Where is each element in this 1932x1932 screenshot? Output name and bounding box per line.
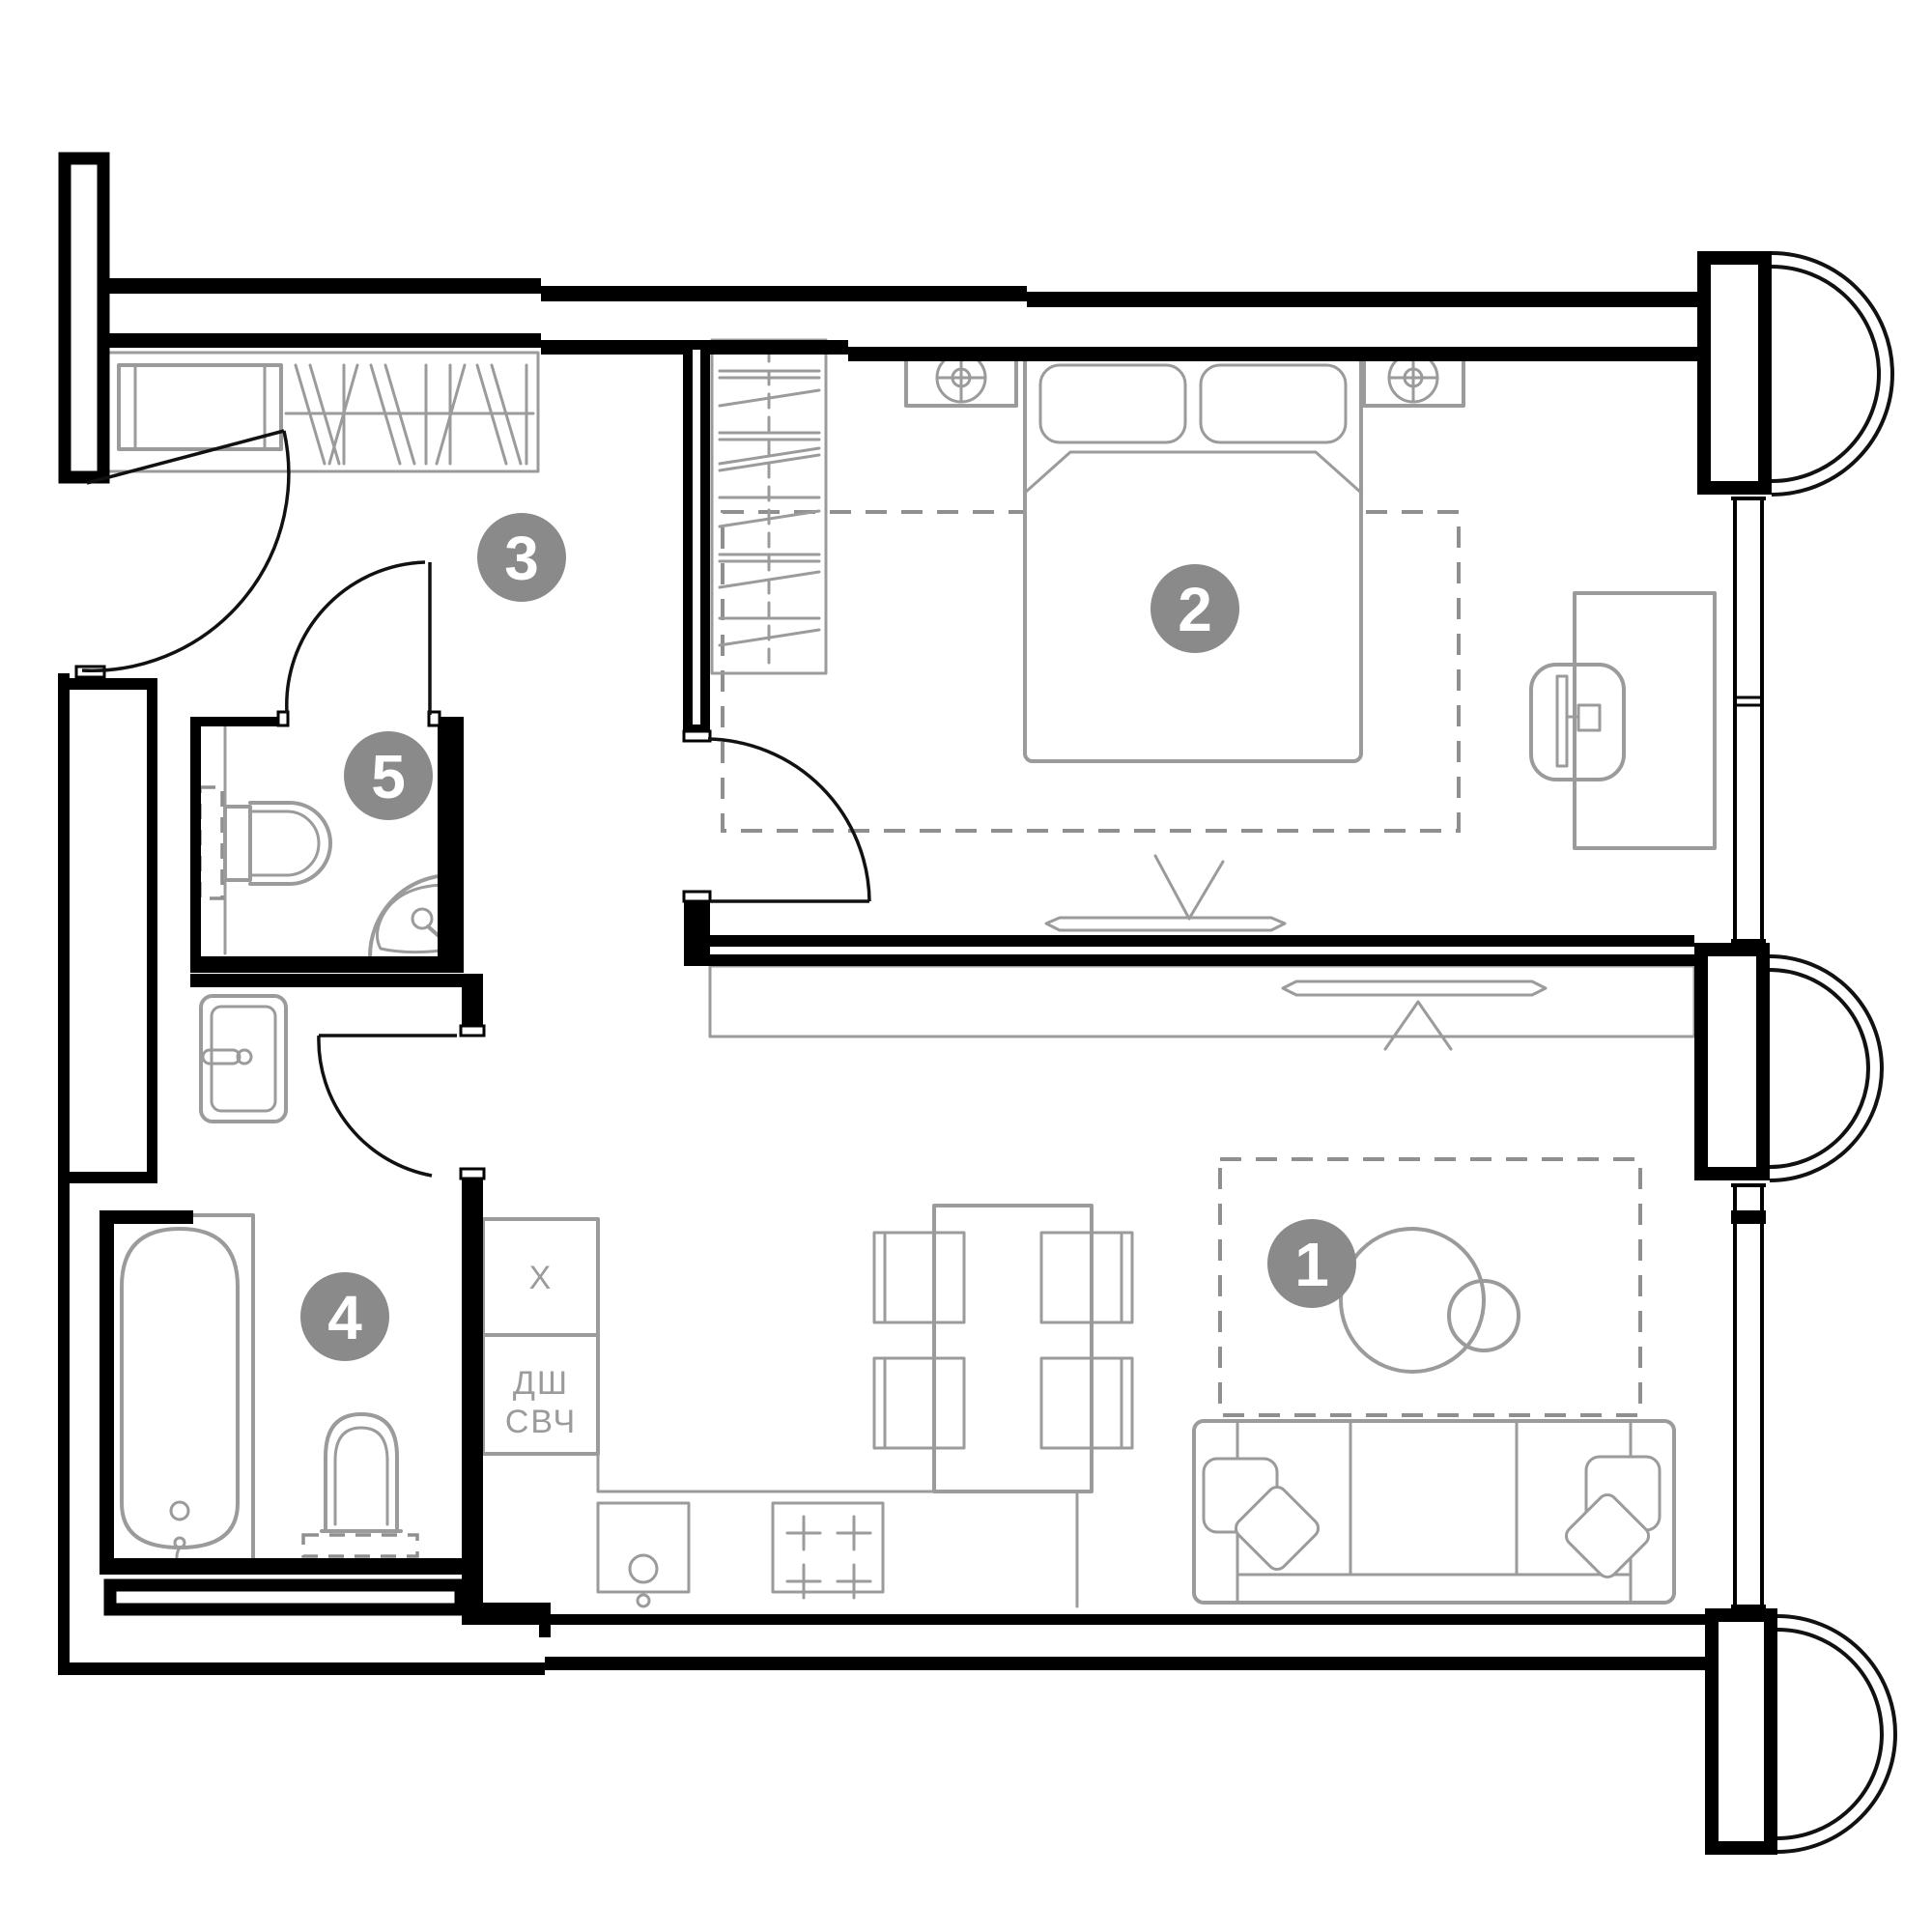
plumbing-chase [110, 1585, 461, 1609]
window-lower [1735, 1183, 1762, 1608]
chair [874, 1358, 964, 1448]
hall-wardrobe [106, 353, 538, 471]
wc-wall-top [190, 717, 283, 726]
balcony-door-mid [1770, 956, 1882, 1180]
badge-number: 4 [327, 1283, 362, 1352]
kitchen: X ДШ СВЧ [483, 1219, 1077, 1606]
pier-top-right [1704, 258, 1765, 488]
chair [1041, 1358, 1132, 1448]
badge-number: 3 [504, 524, 539, 593]
balcony-door-bottom [1777, 1616, 1895, 1852]
bathroom-wall-right [462, 1179, 483, 1606]
duct-dashed [200, 787, 222, 898]
stove-icon [773, 1503, 883, 1598]
chair [1041, 1233, 1132, 1322]
door-jamb [461, 1169, 484, 1179]
kitchen-sink-icon [598, 1503, 689, 1606]
dining-set [874, 1206, 1132, 1492]
wall-top-inner [102, 333, 1697, 361]
bed-outline [1025, 355, 1361, 761]
tv-icon [1283, 981, 1546, 995]
entry-door [82, 431, 289, 670]
badge-living-room: 1 [1267, 1219, 1356, 1308]
shaft-wall [147, 690, 157, 1172]
shoe-bench-edges [135, 365, 265, 449]
dividing-wall-upper [686, 935, 1694, 947]
wall-bottom-inner [539, 1614, 1705, 1637]
bedroom-hall-wall [688, 345, 705, 729]
window-upper [1735, 497, 1762, 943]
toilet-icon [322, 1414, 401, 1531]
pier-mid-right [1701, 950, 1763, 1174]
badge-number: 2 [1178, 575, 1212, 644]
tv-icon [1046, 918, 1285, 930]
washbasin-icon [201, 996, 286, 1122]
floor-plan-svg: X ДШ СВЧ [0, 0, 1932, 1932]
wc-door [287, 562, 430, 715]
fridge-label: X [529, 1260, 554, 1296]
pilaster-top-left [65, 158, 103, 477]
bedroom-tv [1046, 856, 1285, 930]
sofa [1194, 1421, 1674, 1603]
chair [874, 1233, 964, 1322]
counter-edge [483, 1454, 1077, 1606]
window-sill-bar [1731, 1210, 1766, 1224]
bathroom-wall-step [99, 1210, 193, 1224]
wall-console [710, 966, 1694, 1037]
door-jamb [461, 1026, 484, 1036]
shaft-wall [65, 1172, 157, 1183]
balcony-door-top [1772, 253, 1892, 495]
cabinet-label-line1: ДШ [513, 1365, 569, 1402]
bathtub-icon [102, 1215, 253, 1565]
badge-number: 5 [371, 742, 406, 811]
living-furniture [710, 966, 1694, 1603]
bedroom-wardrobe [712, 340, 826, 673]
floor-plan: X ДШ СВЧ [0, 0, 1932, 1932]
bathroom-wall-right [462, 987, 483, 1027]
badge-number: 1 [1294, 1230, 1329, 1299]
wardrobe-outline [712, 340, 826, 673]
double-bed [1025, 355, 1361, 761]
badge-hallway: 3 [477, 513, 566, 602]
hanger-hatch-icon [286, 365, 533, 464]
badge-wc: 5 [344, 731, 433, 820]
door-jamb [684, 731, 710, 741]
wall-connector [462, 1603, 551, 1625]
tv-bracket [1155, 856, 1223, 919]
door-jamb [278, 712, 288, 725]
floor-duct-dashed [303, 1535, 417, 1556]
desk-area [1531, 593, 1715, 848]
coffee-table-large [1341, 1229, 1484, 1372]
bathroom-wall-top [190, 974, 483, 987]
wc-wall-right [438, 717, 464, 956]
pier-bottom-right [1712, 1615, 1771, 1848]
wall-bottom-outer [58, 1657, 1705, 1675]
door-jamb [684, 892, 710, 901]
wc-wall-left [190, 717, 201, 973]
cabinet-label-line2: СВЧ [505, 1404, 577, 1440]
window-transom [1735, 697, 1762, 705]
wc-wall-bottom [190, 956, 464, 973]
bathroom-wall-left [99, 1224, 114, 1575]
bathroom-wall-bottom [101, 1558, 468, 1575]
toilet-icon [225, 803, 330, 884]
wall-top-outer [102, 278, 1697, 307]
dividing-wall-lower [686, 954, 1694, 966]
bedroom-door [708, 739, 869, 901]
badge-bathroom: 4 [300, 1272, 389, 1361]
badge-bedroom: 2 [1151, 564, 1239, 653]
bathroom-door [319, 1036, 457, 1176]
tv-bracket [1385, 1002, 1451, 1049]
shaft-wall [58, 678, 157, 690]
living-tv [1283, 981, 1546, 1049]
